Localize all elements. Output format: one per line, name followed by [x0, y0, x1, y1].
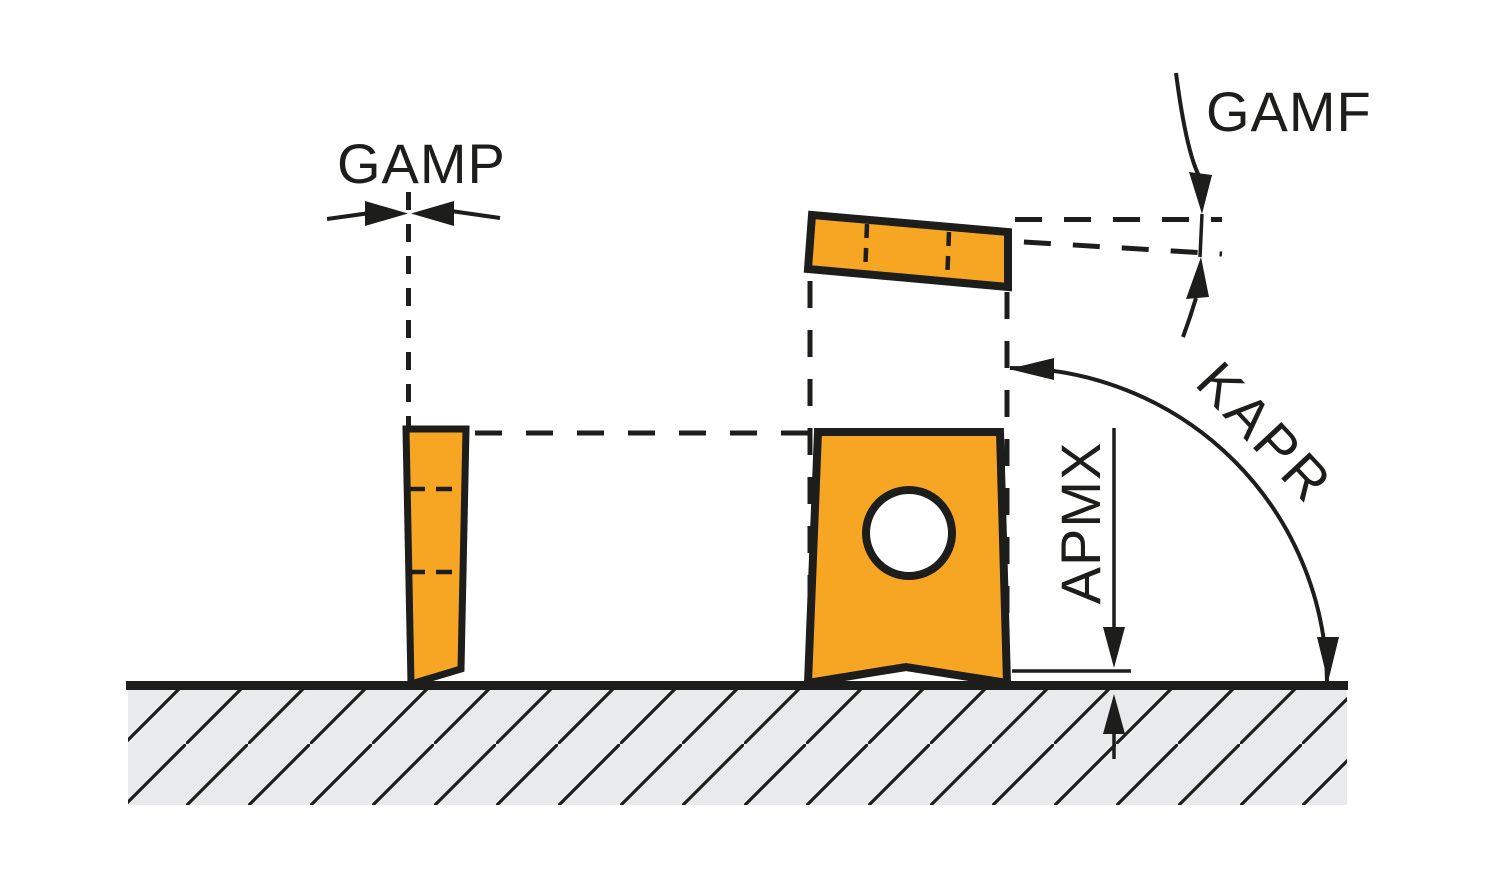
gamf-label: GAMF	[1206, 80, 1372, 143]
gamp-label: GAMP	[337, 132, 506, 195]
gamp-left-arrowhead-icon	[365, 201, 408, 226]
insert-screw-hole	[866, 490, 952, 576]
top-view-insert	[808, 215, 1008, 287]
apmx-down-arrowhead-icon	[1103, 627, 1125, 668]
gamf-down-arrowhead-icon	[1189, 172, 1212, 214]
gamf-up-arrowhead-icon	[1186, 257, 1209, 299]
hatch-pattern	[128, 690, 1347, 805]
top-insert-body	[808, 215, 1008, 287]
side-view-insert	[406, 429, 466, 684]
side-insert-body	[406, 429, 466, 684]
kapr-left-arrowhead-icon	[1009, 358, 1054, 380]
gamp-right-arrowhead-icon	[411, 201, 454, 226]
gamp-dimension: GAMP	[327, 132, 506, 226]
apmx-label: APMX	[1049, 442, 1112, 605]
front-view-insert	[808, 432, 1007, 683]
kapr-label: KAPR	[1185, 350, 1346, 516]
gamf-arrow-connector	[1200, 214, 1202, 257]
insert-geometry-diagram: GAMP GAMF KAPR APMX	[0, 0, 1500, 879]
kapr-down-arrowhead-icon	[1317, 637, 1339, 682]
gamf-dimension: GAMF	[1176, 73, 1372, 337]
gamp-right-shaft	[451, 211, 500, 218]
gamp-left-shaft	[327, 213, 370, 219]
gamf-tilted-dashed-line	[975, 239, 1222, 254]
workpiece-surface	[126, 686, 1348, 806]
diagram-canvas: GAMP GAMF KAPR APMX	[0, 0, 1500, 879]
gamf-upper-shaft	[1176, 73, 1199, 176]
gamf-lower-shaft	[1183, 298, 1196, 337]
